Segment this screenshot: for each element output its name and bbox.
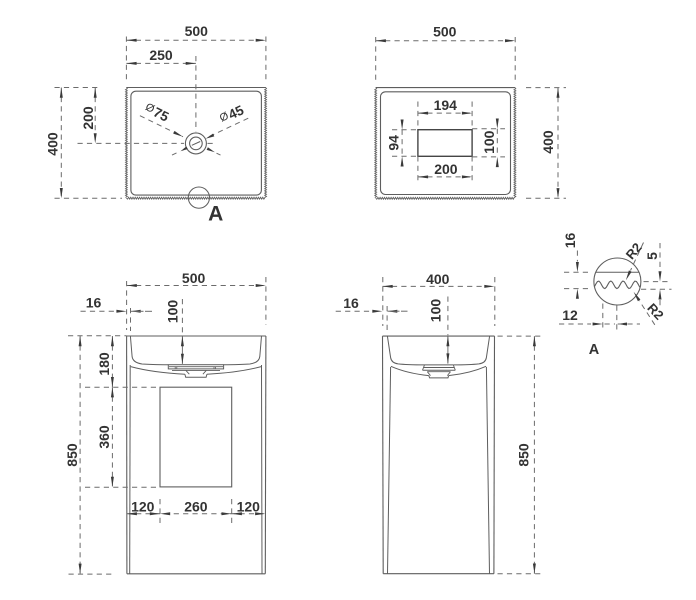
svg-text:260: 260 [184, 498, 208, 514]
svg-text:120: 120 [237, 498, 261, 514]
svg-text:A: A [208, 203, 223, 226]
svg-text:500: 500 [182, 270, 206, 286]
svg-text:200: 200 [434, 161, 458, 177]
svg-text:16: 16 [343, 295, 359, 311]
svg-text:120: 120 [131, 498, 155, 514]
svg-text:100: 100 [165, 300, 181, 324]
svg-text:400: 400 [45, 132, 61, 156]
svg-text:12: 12 [562, 307, 578, 323]
svg-text:16: 16 [86, 295, 102, 311]
svg-text:850: 850 [515, 443, 531, 467]
svg-text:100: 100 [481, 130, 497, 154]
svg-text:400: 400 [540, 130, 556, 154]
svg-text:400: 400 [426, 271, 450, 287]
svg-text:A: A [589, 342, 600, 358]
svg-text:194: 194 [434, 97, 458, 113]
svg-text:850: 850 [64, 443, 80, 467]
svg-text:180: 180 [96, 352, 112, 376]
svg-text:500: 500 [433, 24, 457, 40]
svg-text:16: 16 [562, 233, 578, 249]
svg-text:360: 360 [96, 425, 112, 449]
svg-text:250: 250 [149, 47, 173, 63]
svg-text:5: 5 [644, 252, 660, 260]
svg-text:94: 94 [385, 135, 401, 151]
svg-text:100: 100 [428, 299, 444, 323]
svg-text:500: 500 [185, 23, 209, 39]
svg-text:200: 200 [80, 106, 96, 130]
